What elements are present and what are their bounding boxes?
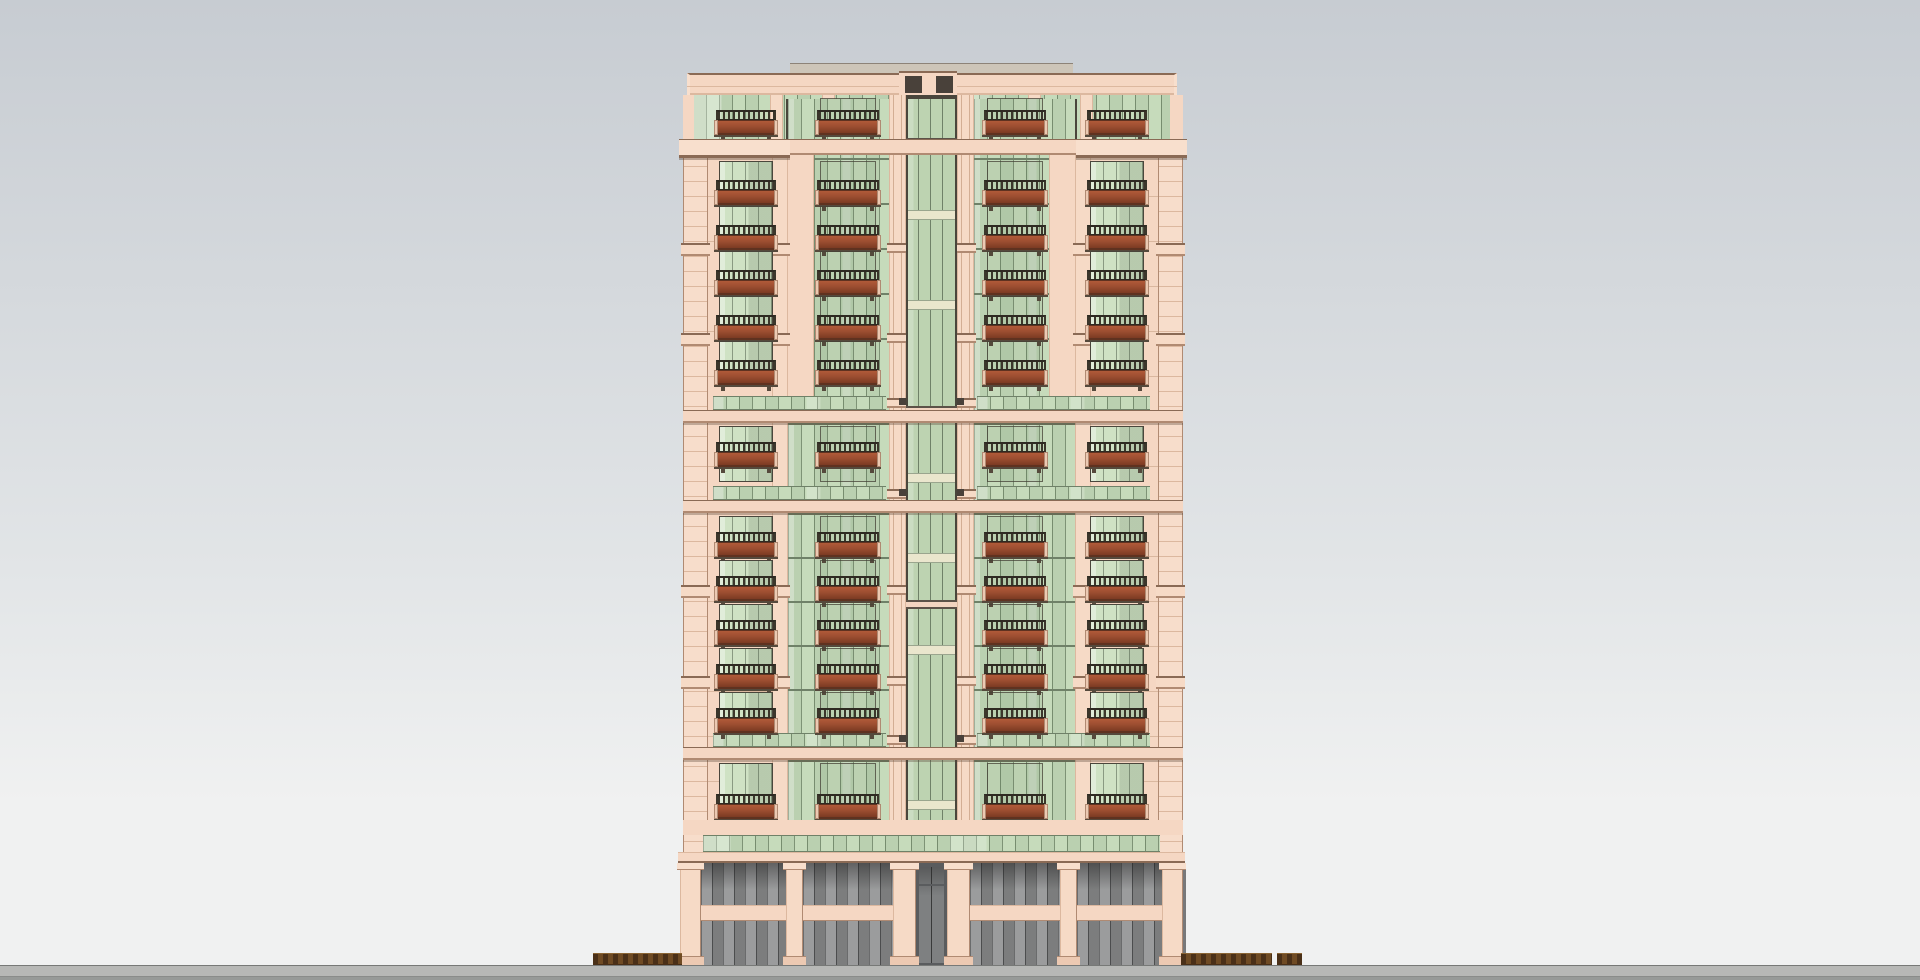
wing-balcony-f12-1-cap-l bbox=[1085, 804, 1089, 819]
center-transom-cream-3 bbox=[906, 600, 957, 609]
wing-balcony-f2-0-cap-l bbox=[714, 235, 718, 250]
wing-balcony-f2-1-cap-r bbox=[1145, 235, 1149, 250]
band-2-balustrade-1 bbox=[977, 733, 1150, 747]
bay-balcony-f4-1-cap-r bbox=[1044, 325, 1048, 340]
bay-balcony-f9-0-cap-l bbox=[815, 630, 819, 645]
podium-pier-5 bbox=[1162, 863, 1183, 965]
center-pier-ledge-1-0 bbox=[887, 333, 908, 343]
podium-pier-base-4 bbox=[1057, 956, 1080, 965]
bay-balcony-f3-0-railing bbox=[817, 270, 879, 280]
wing-balcony-f10-1-planter bbox=[1089, 674, 1145, 689]
wing-balcony-f11-1-cap-l bbox=[1085, 718, 1089, 733]
bay-balcony-f5-0-railing bbox=[817, 360, 879, 370]
wing-balcony-f11-1-cap-r bbox=[1145, 718, 1149, 733]
wing-balcony-f5-0-cap-l bbox=[714, 370, 718, 385]
wing-balcony-f10-1-cap-r bbox=[1145, 674, 1149, 689]
storefront-spandrel-0 bbox=[701, 905, 786, 921]
bay-balcony-f11-1-railing bbox=[984, 708, 1046, 718]
wing-balcony-f5-1-planter bbox=[1089, 370, 1145, 385]
bay-balcony-f2-0-cap-r bbox=[877, 235, 881, 250]
bay-0-floor-line-7 bbox=[786, 513, 891, 515]
pier-ledge-3-0 bbox=[681, 676, 710, 689]
bay-balcony-f1-0-railing bbox=[817, 180, 879, 190]
bay-balcony-f7-0-cap-r bbox=[877, 542, 881, 557]
penthouse-end-wall-0 bbox=[683, 95, 694, 139]
bay-balcony-f6-0-bracket-r bbox=[870, 469, 874, 473]
wing-balcony-f9-1-cap-r bbox=[1145, 630, 1149, 645]
pier-ledge-1-1 bbox=[1156, 333, 1185, 346]
wing-balcony-f6-1-cap-r bbox=[1145, 452, 1149, 467]
bay-balcony-f6-1-bracket-l bbox=[989, 469, 993, 473]
bay-balcony-f5-1-bracket-l bbox=[989, 387, 993, 391]
center-pier-ledge-5-0 bbox=[887, 676, 908, 686]
band-1-balustrade-0 bbox=[713, 486, 886, 500]
wing-balcony-f11-1-planter bbox=[1089, 718, 1145, 733]
bay-balcony-f11-0-bracket-r bbox=[870, 735, 874, 739]
wing-balcony-f12-0-cap-l bbox=[714, 804, 718, 819]
hedge-planter-1 bbox=[1181, 953, 1272, 965]
center-pier-ledge-4-1 bbox=[955, 585, 976, 595]
bay-1-floor-line-12 bbox=[972, 760, 1077, 762]
bay-balcony-f2-0-planter bbox=[819, 235, 877, 250]
pier-ledge-1-0 bbox=[681, 333, 710, 346]
bay-balcony-f9-0-railing bbox=[817, 620, 879, 630]
wing-balcony-f0-0-railing bbox=[716, 110, 776, 120]
wing-balcony-f9-1-railing bbox=[1087, 620, 1147, 630]
band-0-balustrade-1 bbox=[977, 396, 1150, 410]
wing-balcony-f6-0-cap-r bbox=[774, 452, 778, 467]
bay-balcony-f7-0-cap-l bbox=[815, 542, 819, 557]
podium-pier-cap-2 bbox=[890, 863, 919, 870]
bay-balcony-f2-1-planter bbox=[986, 235, 1044, 250]
wing-balcony-f11-0-bracket-r bbox=[767, 735, 771, 739]
bay-balcony-f10-1-cap-r bbox=[1044, 674, 1048, 689]
bay-balcony-f1-1-cap-l bbox=[982, 190, 986, 205]
bay-balcony-f5-1-planter bbox=[986, 370, 1044, 385]
bay-balcony-f3-1-cap-r bbox=[1044, 280, 1048, 295]
center-side-block-l-1 bbox=[899, 489, 906, 496]
wing-balcony-f5-1-bracket-l bbox=[1092, 387, 1096, 391]
bay-balcony-f12-1-cap-r bbox=[1044, 804, 1048, 819]
entrance-door-glass bbox=[919, 867, 944, 963]
bay-1-floor-line-7 bbox=[972, 513, 1077, 515]
wing-balcony-f9-0-cap-r bbox=[774, 630, 778, 645]
bay-balcony-f10-0-cap-l bbox=[815, 674, 819, 689]
wing-balcony-f5-1-railing bbox=[1087, 360, 1147, 370]
cornice1-wing-0 bbox=[679, 139, 790, 158]
bay-balcony-f4-0-railing bbox=[817, 315, 879, 325]
center-spandrel-pale-4 bbox=[908, 645, 955, 655]
wing-balcony-f5-0-bracket-l bbox=[721, 387, 725, 391]
wing-balcony-f1-1-cap-r bbox=[1145, 190, 1149, 205]
bay-balcony-f0-0-cap-r bbox=[877, 120, 881, 135]
bay-balcony-f4-1-cap-l bbox=[982, 325, 986, 340]
storefront-spandrel-1 bbox=[803, 905, 893, 921]
bay-balcony-f8-0-cap-r bbox=[877, 586, 881, 601]
wing-balcony-f7-0-cap-r bbox=[774, 542, 778, 557]
wing-balcony-f3-1-planter bbox=[1089, 280, 1145, 295]
wing-balcony-f4-1-cap-l bbox=[1085, 325, 1089, 340]
wing-balcony-f3-1-railing bbox=[1087, 270, 1147, 280]
podium-pier-2 bbox=[893, 863, 916, 965]
bay-balcony-f9-1-cap-r bbox=[1044, 630, 1048, 645]
wing-balcony-f11-1-railing bbox=[1087, 708, 1147, 718]
podium-pier-cap-3 bbox=[944, 863, 973, 870]
bay-balcony-f6-0-planter bbox=[819, 452, 877, 467]
wing-balcony-f7-1-planter bbox=[1089, 542, 1145, 557]
wing-balcony-f6-1-bracket-r bbox=[1138, 469, 1142, 473]
hedge-planter-2 bbox=[1277, 953, 1302, 965]
wing-balcony-f0-1-cap-r bbox=[1145, 120, 1149, 135]
wing-balcony-f7-1-railing bbox=[1087, 532, 1147, 542]
bay-balcony-f1-0-cap-l bbox=[815, 190, 819, 205]
wing-balcony-f0-1-cap-l bbox=[1085, 120, 1089, 135]
storefront-spandrel-2 bbox=[970, 905, 1060, 921]
podium-pier-base-1 bbox=[783, 956, 806, 965]
cornice1-mid bbox=[790, 139, 1076, 155]
bay-balcony-f9-0-cap-r bbox=[877, 630, 881, 645]
bay-balcony-f6-1-railing bbox=[984, 442, 1046, 452]
entrance-door-transom bbox=[916, 884, 947, 886]
bay-balcony-f8-0-railing bbox=[817, 576, 879, 586]
bay-balcony-f6-0-cap-l bbox=[815, 452, 819, 467]
wing-balcony-f11-1-bracket-l bbox=[1092, 735, 1096, 739]
wing-balcony-f4-1-planter bbox=[1089, 325, 1145, 340]
podium-pier-4 bbox=[1060, 863, 1077, 965]
bay-balcony-f2-1-cap-r bbox=[1044, 235, 1048, 250]
wing-balcony-f1-0-planter bbox=[718, 190, 774, 205]
wing-balcony-f7-0-railing bbox=[716, 532, 776, 542]
bay-balcony-f12-0-railing bbox=[817, 794, 879, 804]
wing-balcony-f12-1-railing bbox=[1087, 794, 1147, 804]
bay-balcony-f7-0-railing bbox=[817, 532, 879, 542]
bay-balcony-f3-0-cap-l bbox=[815, 280, 819, 295]
bay-balcony-f11-0-railing bbox=[817, 708, 879, 718]
bay-balcony-f11-1-cap-l bbox=[982, 718, 986, 733]
wing-balcony-f5-0-planter bbox=[718, 370, 774, 385]
wing-balcony-f8-0-planter bbox=[718, 586, 774, 601]
wing-balcony-f2-0-railing bbox=[716, 225, 776, 235]
wing-balcony-f9-0-cap-l bbox=[714, 630, 718, 645]
wing-balcony-f2-0-planter bbox=[718, 235, 774, 250]
center-side-block-r-2 bbox=[957, 735, 964, 742]
wing-balcony-f5-1-cap-l bbox=[1085, 370, 1089, 385]
wing-balcony-f6-1-planter bbox=[1089, 452, 1145, 467]
wing-balcony-f4-0-planter bbox=[718, 325, 774, 340]
hedge-planter-0 bbox=[593, 953, 682, 965]
bay-balcony-f0-1-planter bbox=[986, 120, 1044, 135]
bay-balcony-f3-0-planter bbox=[819, 280, 877, 295]
wing-balcony-f2-0-cap-r bbox=[774, 235, 778, 250]
bay-0-floor-line-12 bbox=[786, 760, 891, 762]
wing-balcony-f6-0-planter bbox=[718, 452, 774, 467]
wing-balcony-f11-0-cap-r bbox=[774, 718, 778, 733]
wing-balcony-f5-0-cap-r bbox=[774, 370, 778, 385]
wing-balcony-f3-1-cap-r bbox=[1145, 280, 1149, 295]
bay-balcony-f5-0-bracket-l bbox=[822, 387, 826, 391]
bay-balcony-f1-0-cap-r bbox=[877, 190, 881, 205]
wing-balcony-f1-1-railing bbox=[1087, 180, 1147, 190]
center-spandrel-pale-1 bbox=[908, 300, 955, 310]
band-0-balustrade-0 bbox=[713, 396, 886, 410]
wing-balcony-f6-0-cap-l bbox=[714, 452, 718, 467]
bay-balcony-f5-1-cap-l bbox=[982, 370, 986, 385]
wing-balcony-f4-0-cap-l bbox=[714, 325, 718, 340]
wing-balcony-f8-1-railing bbox=[1087, 576, 1147, 586]
wing-balcony-f5-1-cap-r bbox=[1145, 370, 1149, 385]
wing-balcony-f11-0-planter bbox=[718, 718, 774, 733]
bay-balcony-f1-1-planter bbox=[986, 190, 1044, 205]
center-side-block-r-1 bbox=[957, 489, 964, 496]
wing-balcony-f11-0-cap-l bbox=[714, 718, 718, 733]
bay-balcony-f11-0-cap-l bbox=[815, 718, 819, 733]
street-road bbox=[0, 976, 1920, 980]
lower-wall-strip bbox=[683, 820, 1183, 835]
wing-balcony-f1-1-cap-l bbox=[1085, 190, 1089, 205]
center-spandrel-pale-0 bbox=[908, 210, 955, 220]
bay-balcony-f2-1-railing bbox=[984, 225, 1046, 235]
podium-pier-cap-0 bbox=[677, 863, 704, 870]
wing-balcony-f3-1-cap-l bbox=[1085, 280, 1089, 295]
wing-balcony-f8-1-cap-l bbox=[1085, 586, 1089, 601]
wing-balcony-f8-1-planter bbox=[1089, 586, 1145, 601]
bay-balcony-f9-1-planter bbox=[986, 630, 1044, 645]
wing-balcony-f11-0-railing bbox=[716, 708, 776, 718]
bay-balcony-f0-1-cap-l bbox=[982, 120, 986, 135]
bay-balcony-f4-1-planter bbox=[986, 325, 1044, 340]
bay-balcony-f10-0-railing bbox=[817, 664, 879, 674]
pier-ledge-2-1 bbox=[1156, 585, 1185, 598]
bay-balcony-f11-0-cap-r bbox=[877, 718, 881, 733]
wing-balcony-f6-1-railing bbox=[1087, 442, 1147, 452]
bay-balcony-f0-0-planter bbox=[819, 120, 877, 135]
wing-balcony-f7-0-planter bbox=[718, 542, 774, 557]
center-pier-ledge-1-1 bbox=[955, 333, 976, 343]
wing-balcony-f6-0-railing bbox=[716, 442, 776, 452]
wing-balcony-f11-0-bracket-l bbox=[721, 735, 725, 739]
wing-balcony-f1-0-railing bbox=[716, 180, 776, 190]
bay-balcony-f2-0-railing bbox=[817, 225, 879, 235]
center-spandrel-pale-3 bbox=[908, 553, 955, 563]
bay-balcony-f9-1-cap-l bbox=[982, 630, 986, 645]
bay-1-floor-line-6 bbox=[972, 423, 1077, 425]
bay-balcony-f12-0-cap-r bbox=[877, 804, 881, 819]
bay-balcony-f5-0-cap-l bbox=[815, 370, 819, 385]
bay-balcony-f7-1-cap-r bbox=[1044, 542, 1048, 557]
bay-balcony-f8-1-railing bbox=[984, 576, 1046, 586]
cornice1-wing-1 bbox=[1076, 139, 1187, 158]
podium-pier-base-3 bbox=[944, 956, 973, 965]
bay-balcony-f7-1-cap-l bbox=[982, 542, 986, 557]
bay-balcony-f5-1-cap-r bbox=[1044, 370, 1048, 385]
center-spandrel-pale-2 bbox=[908, 473, 955, 483]
podium-pier-cap-1 bbox=[783, 863, 806, 870]
bay-balcony-f3-1-railing bbox=[984, 270, 1046, 280]
wing-balcony-f5-0-bracket-r bbox=[767, 387, 771, 391]
wing-balcony-f3-0-railing bbox=[716, 270, 776, 280]
bay-balcony-f6-0-railing bbox=[817, 442, 879, 452]
bay-balcony-f6-1-cap-r bbox=[1044, 452, 1048, 467]
upper-bay-infill-0 bbox=[786, 155, 814, 396]
wing-balcony-f8-0-railing bbox=[716, 576, 776, 586]
bay-balcony-f8-1-planter bbox=[986, 586, 1044, 601]
bay-balcony-f8-1-cap-l bbox=[982, 586, 986, 601]
wing-balcony-f10-1-railing bbox=[1087, 664, 1147, 674]
bay-balcony-f9-0-planter bbox=[819, 630, 877, 645]
bay-balcony-f7-0-planter bbox=[819, 542, 877, 557]
wing-balcony-f12-0-planter bbox=[718, 804, 774, 819]
bay-balcony-f4-0-cap-l bbox=[815, 325, 819, 340]
wing-balcony-f6-0-bracket-r bbox=[767, 469, 771, 473]
bay-balcony-f6-1-bracket-r bbox=[1037, 469, 1041, 473]
wing-balcony-f2-1-planter bbox=[1089, 235, 1145, 250]
wing-balcony-f3-0-cap-l bbox=[714, 280, 718, 295]
storefront-spandrel-3 bbox=[1077, 905, 1162, 921]
bay-balcony-f11-1-planter bbox=[986, 718, 1044, 733]
wing-balcony-f9-0-planter bbox=[718, 630, 774, 645]
elevation-render-viewport bbox=[0, 0, 1920, 980]
bay-balcony-f12-1-planter bbox=[986, 804, 1044, 819]
upper-bay-infill-1 bbox=[1049, 155, 1077, 396]
bay-balcony-f11-1-bracket-l bbox=[989, 735, 993, 739]
bay-balcony-f4-1-railing bbox=[984, 315, 1046, 325]
wing-balcony-f6-1-bracket-l bbox=[1092, 469, 1096, 473]
band-2-cornice bbox=[683, 747, 1183, 760]
wing-balcony-f6-1-cap-l bbox=[1085, 452, 1089, 467]
wing-balcony-f10-0-planter bbox=[718, 674, 774, 689]
wing-balcony-f4-0-cap-r bbox=[774, 325, 778, 340]
podium-pier-1 bbox=[786, 863, 803, 965]
wing-balcony-f0-1-railing bbox=[1087, 110, 1147, 120]
bay-balcony-f5-0-bracket-r bbox=[870, 387, 874, 391]
wing-balcony-f2-1-cap-l bbox=[1085, 235, 1089, 250]
bay-balcony-f11-0-bracket-l bbox=[822, 735, 826, 739]
center-side-block-r-0 bbox=[957, 398, 964, 405]
wing-balcony-f2-1-railing bbox=[1087, 225, 1147, 235]
bay-balcony-f2-0-cap-l bbox=[815, 235, 819, 250]
bay-balcony-f6-1-planter bbox=[986, 452, 1044, 467]
band-0-cornice bbox=[683, 410, 1183, 423]
wing-balcony-f5-1-bracket-r bbox=[1138, 387, 1142, 391]
podium-pier-base-2 bbox=[890, 956, 919, 965]
wing-balcony-f9-0-railing bbox=[716, 620, 776, 630]
wing-balcony-f0-0-cap-r bbox=[774, 120, 778, 135]
wing-balcony-f11-1-bracket-r bbox=[1138, 735, 1142, 739]
center-spandrel-pale-5 bbox=[908, 800, 955, 810]
bay-balcony-f6-1-cap-l bbox=[982, 452, 986, 467]
bay-balcony-f5-0-cap-r bbox=[877, 370, 881, 385]
wing-balcony-f9-1-cap-l bbox=[1085, 630, 1089, 645]
wing-balcony-f0-1-planter bbox=[1089, 120, 1145, 135]
center-side-block-l-0 bbox=[899, 398, 906, 405]
bay-balcony-f6-0-bracket-l bbox=[822, 469, 826, 473]
bay-balcony-f11-0-planter bbox=[819, 718, 877, 733]
wing-balcony-f8-1-cap-r bbox=[1145, 586, 1149, 601]
wing-balcony-f4-1-cap-r bbox=[1145, 325, 1149, 340]
bay-balcony-f6-0-cap-r bbox=[877, 452, 881, 467]
bay-balcony-f8-1-cap-r bbox=[1044, 586, 1048, 601]
bay-balcony-f12-1-railing bbox=[984, 794, 1046, 804]
bay-balcony-f3-1-planter bbox=[986, 280, 1044, 295]
wing-balcony-f4-0-railing bbox=[716, 315, 776, 325]
center-pier-ledge-0-1 bbox=[955, 243, 976, 253]
wing-balcony-f1-0-cap-l bbox=[714, 190, 718, 205]
bay-balcony-f4-0-cap-r bbox=[877, 325, 881, 340]
wing-balcony-f5-0-railing bbox=[716, 360, 776, 370]
bay-balcony-f0-1-cap-r bbox=[1044, 120, 1048, 135]
bay-0-floor-line-6 bbox=[786, 423, 891, 425]
bay-balcony-f4-0-planter bbox=[819, 325, 877, 340]
bay-balcony-f7-1-railing bbox=[984, 532, 1046, 542]
podium-pier-cap-5 bbox=[1159, 863, 1186, 870]
wing-balcony-f3-0-planter bbox=[718, 280, 774, 295]
bay-balcony-f5-1-bracket-r bbox=[1037, 387, 1041, 391]
bay-balcony-f0-1-railing bbox=[984, 110, 1046, 120]
wing-balcony-f1-1-planter bbox=[1089, 190, 1145, 205]
center-side-block-l-2 bbox=[899, 735, 906, 742]
bay-balcony-f10-0-cap-r bbox=[877, 674, 881, 689]
wing-balcony-f1-0-cap-r bbox=[774, 190, 778, 205]
bay-balcony-f3-1-cap-l bbox=[982, 280, 986, 295]
wing-balcony-f0-0-cap-l bbox=[714, 120, 718, 135]
bay-balcony-f9-1-railing bbox=[984, 620, 1046, 630]
bay-balcony-f1-1-cap-r bbox=[1044, 190, 1048, 205]
wing-balcony-f7-0-cap-l bbox=[714, 542, 718, 557]
bay-balcony-f12-0-cap-l bbox=[815, 804, 819, 819]
bay-balcony-f11-1-bracket-r bbox=[1037, 735, 1041, 739]
bay-balcony-f5-1-railing bbox=[984, 360, 1046, 370]
roof-stack-slot-1 bbox=[936, 76, 953, 93]
wing-balcony-f12-1-cap-r bbox=[1145, 804, 1149, 819]
pier-ledge-0-1 bbox=[1156, 243, 1185, 256]
pier-ledge-3-1 bbox=[1156, 676, 1185, 689]
bay-balcony-f5-0-planter bbox=[819, 370, 877, 385]
bay-balcony-f12-1-cap-l bbox=[982, 804, 986, 819]
podium-slab bbox=[678, 852, 1185, 863]
penthouse-end-wall-1 bbox=[1170, 95, 1183, 139]
wing-balcony-f7-1-cap-r bbox=[1145, 542, 1149, 557]
wing-balcony-f10-1-cap-l bbox=[1085, 674, 1089, 689]
bay-balcony-f10-1-railing bbox=[984, 664, 1046, 674]
wing-balcony-f12-1-planter bbox=[1089, 804, 1145, 819]
bay-balcony-f10-1-cap-l bbox=[982, 674, 986, 689]
wing-balcony-f0-0-planter bbox=[718, 120, 774, 135]
podium-loggia-glazing bbox=[703, 835, 1160, 852]
bay-balcony-f10-1-planter bbox=[986, 674, 1044, 689]
wing-balcony-f12-0-cap-r bbox=[774, 804, 778, 819]
bay-balcony-f1-0-planter bbox=[819, 190, 877, 205]
wing-balcony-f4-1-railing bbox=[1087, 315, 1147, 325]
podium-pier-0 bbox=[680, 863, 701, 965]
wing-balcony-f3-0-cap-r bbox=[774, 280, 778, 295]
street-sidewalk bbox=[0, 965, 1920, 976]
podium-pier-cap-4 bbox=[1057, 863, 1080, 870]
bay-balcony-f12-0-planter bbox=[819, 804, 877, 819]
bay-balcony-f11-1-cap-r bbox=[1044, 718, 1048, 733]
pier-ledge-2-0 bbox=[681, 585, 710, 598]
roof-stack-slot-0 bbox=[905, 76, 922, 93]
center-pier-ledge-5-1 bbox=[955, 676, 976, 686]
wing-balcony-f7-1-cap-l bbox=[1085, 542, 1089, 557]
bay-balcony-f0-0-railing bbox=[817, 110, 879, 120]
wing-balcony-f12-0-railing bbox=[716, 794, 776, 804]
wing-balcony-f10-0-railing bbox=[716, 664, 776, 674]
wing-balcony-f6-0-bracket-l bbox=[721, 469, 725, 473]
center-pier-ledge-4-0 bbox=[887, 585, 908, 595]
bay-balcony-f8-0-cap-l bbox=[815, 586, 819, 601]
wing-balcony-f10-0-cap-r bbox=[774, 674, 778, 689]
band-1-balustrade-1 bbox=[977, 486, 1150, 500]
